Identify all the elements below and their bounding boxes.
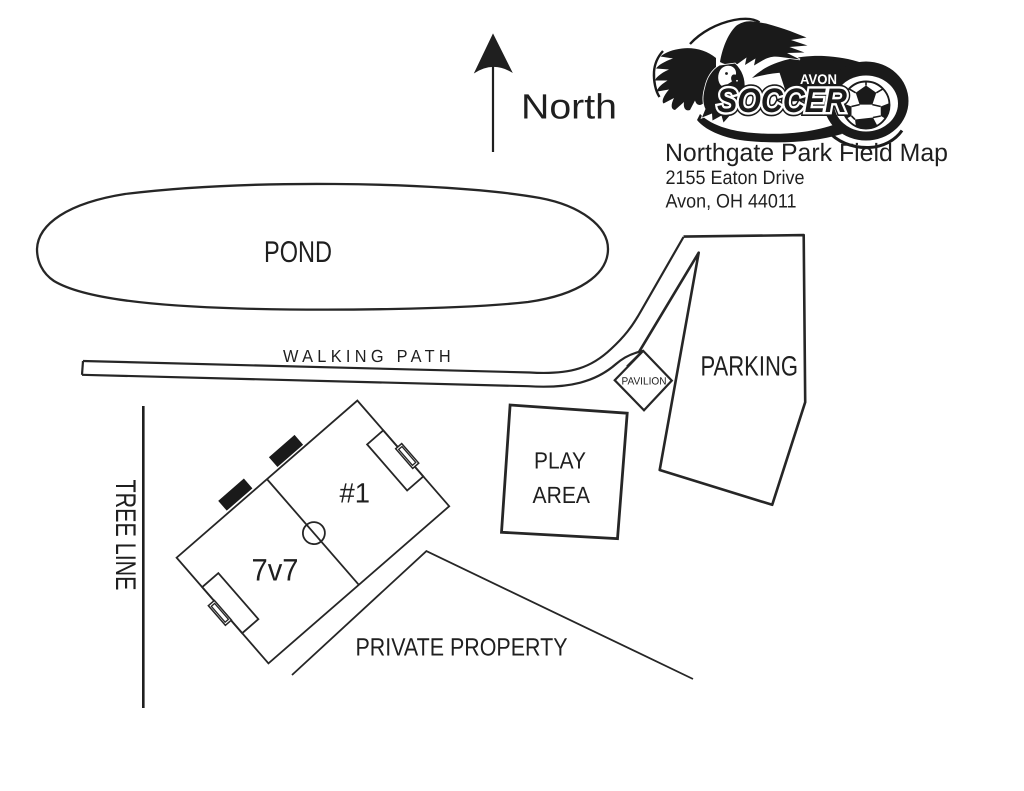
svg-text:AREA: AREA [533,482,591,508]
svg-text:PARKING: PARKING [701,351,799,382]
svg-text:AVON: AVON [800,71,837,87]
svg-text:Northgate Park Field Map: Northgate Park Field Map [665,139,948,167]
svg-text:SOCCER: SOCCER [717,82,847,120]
svg-text:North: North [521,88,617,127]
svg-text:POND: POND [264,236,332,269]
svg-text:7v7: 7v7 [252,553,299,588]
svg-text:PLAY: PLAY [534,448,586,474]
svg-text:WALKING PATH: WALKING PATH [283,346,455,366]
svg-text:#1: #1 [340,478,371,509]
svg-text:PAVILION: PAVILION [622,376,667,388]
svg-text:2155 Eaton Drive: 2155 Eaton Drive [666,167,805,189]
svg-text:PRIVATE PROPERTY: PRIVATE PROPERTY [356,634,568,662]
svg-text:TREE LINE: TREE LINE [109,480,141,591]
svg-text:Avon, OH 44011: Avon, OH 44011 [666,191,797,213]
